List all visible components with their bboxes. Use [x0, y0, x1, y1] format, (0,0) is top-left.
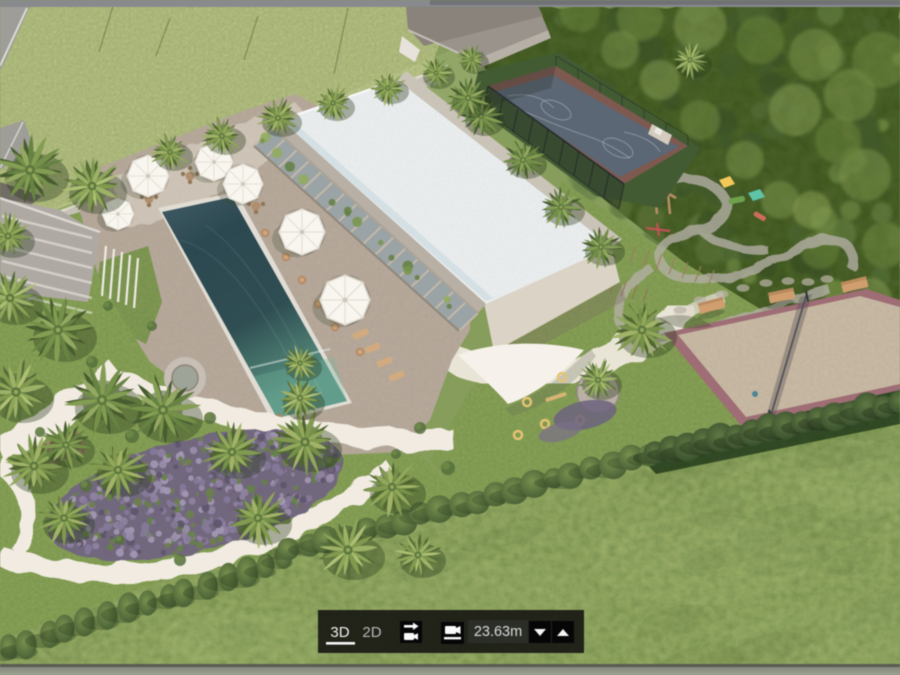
svg-text:3D: 3D: [330, 624, 349, 641]
svg-text:2D: 2D: [362, 624, 381, 641]
svg-text:23.63m: 23.63m: [474, 624, 522, 640]
